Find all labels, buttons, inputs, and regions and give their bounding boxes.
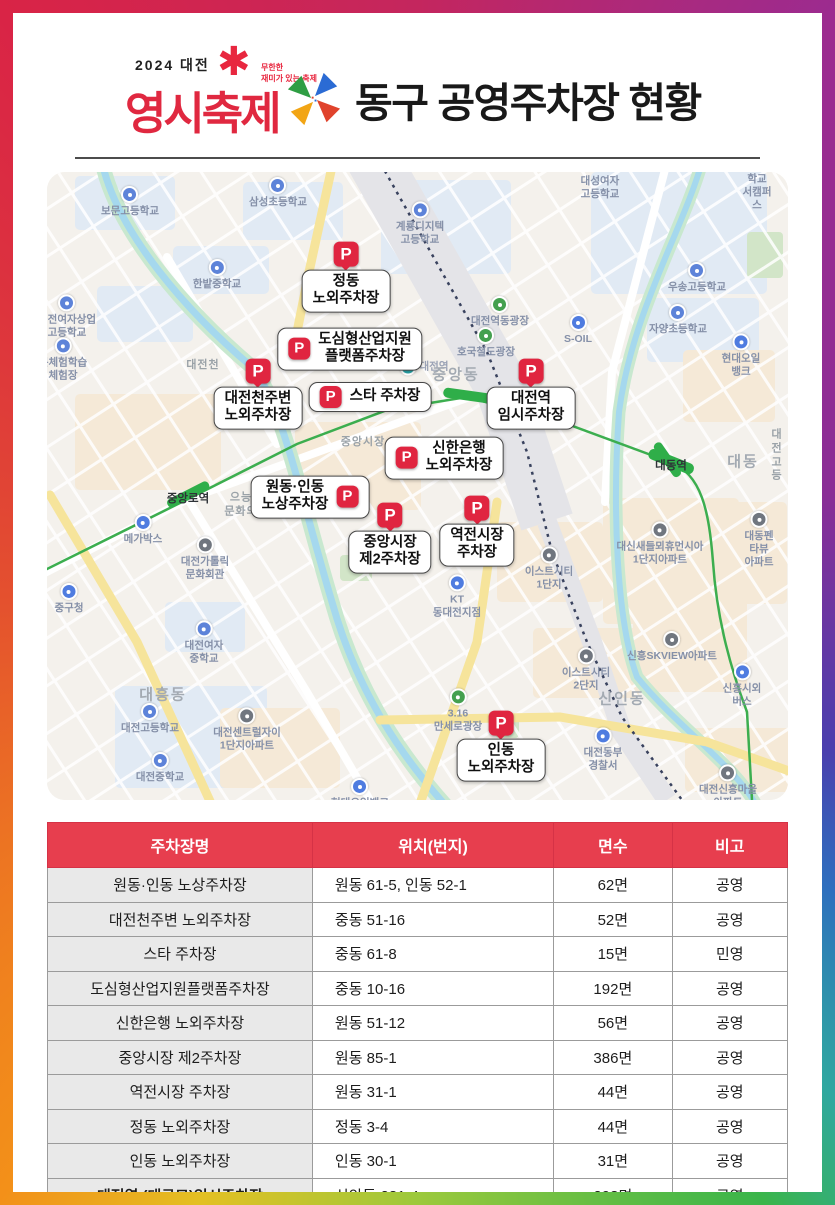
map-label-text: 중앙로역 bbox=[167, 492, 209, 506]
map-label: 신인동 bbox=[598, 691, 645, 710]
store-icon bbox=[60, 583, 77, 600]
school-icon bbox=[59, 294, 76, 311]
capacity-cell: 44면 bbox=[554, 1109, 672, 1144]
map-label-text: 대신새들뫼휴먼시아 1단지아파트 bbox=[617, 540, 704, 566]
location-cell: 중동 10-16 bbox=[312, 971, 553, 1006]
map-label-text: 대전고등학교 bbox=[121, 722, 179, 735]
location-cell: 원동 51-12 bbox=[312, 1006, 553, 1041]
parking-name-cell: 대전천주변 노외주차장 bbox=[48, 902, 313, 937]
apt-icon bbox=[720, 764, 737, 781]
map-label: 현대오일뱅크 bbox=[331, 778, 389, 800]
capacity-cell: 44면 bbox=[554, 1075, 672, 1110]
capacity-cell: 62면 bbox=[554, 868, 672, 903]
store-icon bbox=[594, 727, 611, 744]
map-label-text: 삼성초등학교 bbox=[249, 196, 307, 209]
parking-marker: P신한은행 노외주차장 bbox=[385, 437, 504, 480]
donggu-pinwheel-icon bbox=[285, 70, 343, 128]
map-label: 우송대학교 서캠퍼스 bbox=[742, 172, 773, 212]
table-row: 정동 노외주차장정동 3-444면공영 bbox=[48, 1109, 788, 1144]
apt-icon bbox=[663, 631, 680, 648]
school-icon bbox=[152, 752, 169, 769]
map-label: 대전 고등 bbox=[771, 429, 782, 484]
apt-icon bbox=[651, 521, 668, 538]
map-label: 대전고등학교 bbox=[121, 703, 179, 735]
school-icon bbox=[209, 259, 226, 276]
capacity-cell: 52면 bbox=[554, 902, 672, 937]
table-row: 역전시장 주차장원동 31-144면공영 bbox=[48, 1075, 788, 1110]
capacity-cell: 15면 bbox=[554, 937, 672, 972]
map-label: 대전동부 경찰서 bbox=[584, 727, 623, 772]
map-label: KT 동대전지점 bbox=[433, 574, 481, 619]
map-label-text: 이스트시티 2단지 bbox=[562, 666, 610, 692]
store-icon bbox=[134, 514, 151, 531]
map-label-text: 우송고등학교 bbox=[668, 281, 726, 294]
plaza-icon bbox=[492, 296, 509, 313]
map-label: 호국철도광장 bbox=[457, 327, 515, 359]
parking-marker-label: P스타 주차장 bbox=[309, 382, 432, 412]
star-icon: ✱ bbox=[217, 39, 251, 85]
store-icon bbox=[449, 574, 466, 591]
parking-p-icon: P bbox=[288, 338, 310, 360]
map-label: S-OIL bbox=[564, 314, 592, 346]
note-cell: 공영 bbox=[672, 1178, 787, 1192]
poster-body: 2024 대전 ✱ 무한한 재미가 있는 축제 영시축제 동구 공영주차장 현황 bbox=[13, 13, 822, 1192]
note-cell: 공영 bbox=[672, 1144, 787, 1179]
location-cell: 원동 31-1 bbox=[312, 1075, 553, 1110]
map-label-text: 신인동 bbox=[598, 691, 645, 710]
table-header-row: 주차장명위치(번지)면수비고 bbox=[48, 823, 788, 868]
map-label: 중앙로역 bbox=[167, 492, 209, 506]
capacity-cell: 298면 bbox=[554, 1178, 672, 1192]
parking-marker: P정동 노외주차장 bbox=[302, 242, 391, 313]
table-row: 대전역 (대규모)임시주차장신안동 231-4298면공영 bbox=[48, 1178, 788, 1192]
map-label-text: 문체험학습 체험장 bbox=[47, 356, 87, 382]
school-icon bbox=[122, 186, 139, 203]
note-cell: 공영 bbox=[672, 868, 787, 903]
header-title-row: 동구 공영주차장 현황 bbox=[285, 69, 701, 129]
parking-name-cell: 인동 노외주차장 bbox=[48, 1144, 313, 1179]
apt-icon bbox=[239, 707, 256, 724]
map-label-text: 대동펜타뷰 아파트 bbox=[745, 530, 774, 569]
parking-marker-text: 스타 주차장 bbox=[350, 388, 421, 405]
map-label-text: 중앙동 bbox=[432, 367, 479, 386]
store-icon bbox=[352, 778, 369, 795]
parking-p-icon: P bbox=[465, 496, 490, 521]
location-cell: 원동 85-1 bbox=[312, 1040, 553, 1075]
note-cell: 공영 bbox=[672, 971, 787, 1006]
table-row: 원동·인동 노상주차장원동 61-5, 인동 52-162면공영 bbox=[48, 868, 788, 903]
school-icon bbox=[142, 703, 159, 720]
map-label: 대신새들뫼휴먼시아 1단지아파트 bbox=[617, 521, 704, 566]
parking-p-icon: P bbox=[518, 359, 543, 384]
school-icon bbox=[195, 620, 212, 637]
map-label-text: 현대오일뱅크 bbox=[718, 352, 765, 378]
parking-name-cell: 신한은행 노외주차장 bbox=[48, 1006, 313, 1041]
map-label: 대전중학교 bbox=[136, 752, 184, 784]
map-label-text: 대동역 bbox=[655, 459, 687, 473]
parking-marker-text: 신한은행 노외주차장 bbox=[426, 441, 493, 476]
parking-name-cell: 스타 주차장 bbox=[48, 937, 313, 972]
school-icon bbox=[270, 177, 287, 194]
map-label-text: 현대오일뱅크 bbox=[331, 797, 389, 800]
map-label-text: 자양초등학교 bbox=[649, 323, 707, 336]
school-icon bbox=[412, 201, 429, 218]
map-label: 계룡디지텍 고등학교 bbox=[396, 201, 444, 246]
parking-marker-text: 도심형산업지원 플랫폼주차장 bbox=[318, 332, 411, 367]
map-label: 문체험학습 체험장 bbox=[47, 337, 87, 382]
map-label: 대전여자상업 고등학교 bbox=[47, 294, 96, 339]
map-label-text: 우송대학교 서캠퍼스 bbox=[742, 172, 773, 212]
parking-marker-text: 원동·인동 노상주차장 bbox=[262, 480, 329, 515]
parking-marker: P역전시장 주차장 bbox=[439, 496, 514, 567]
parking-marker-label: 대전역 임시주차장 bbox=[487, 387, 576, 430]
apt-icon bbox=[197, 536, 214, 553]
school-icon bbox=[689, 262, 706, 279]
capacity-cell: 31면 bbox=[554, 1144, 672, 1179]
map-label-text: 대전가톨릭 문화회관 bbox=[181, 555, 229, 581]
page-title: 동구 공영주차장 현황 bbox=[355, 69, 701, 129]
note-cell: 공영 bbox=[672, 1109, 787, 1144]
map-label-text: 대성여자 고등학교 bbox=[581, 175, 620, 201]
map-label: 대전센트럴자이 1단지아파트 bbox=[213, 707, 281, 752]
apt-icon bbox=[578, 647, 595, 664]
parking-marker-label: 역전시장 주차장 bbox=[439, 524, 514, 567]
map-label: 메가박스 bbox=[124, 514, 163, 546]
parking-p-icon: P bbox=[320, 386, 342, 408]
store-icon bbox=[734, 663, 751, 680]
table-row: 도심형산업지원플랫폼주차장중동 10-16192면공영 bbox=[48, 971, 788, 1006]
parking-p-icon: P bbox=[378, 503, 403, 528]
parking-name-cell: 정동 노외주차장 bbox=[48, 1109, 313, 1144]
map-label: 이스트시티 2단지 bbox=[562, 647, 610, 692]
map-label: 이스트시티 1단지 bbox=[525, 546, 573, 591]
map-label: 대전가톨릭 문화회관 bbox=[181, 536, 229, 581]
parking-map: 보문고등학교삼성초등학교계룡디지텍 고등학교대성여자 고등학교우송대학교 서캠퍼… bbox=[47, 172, 788, 800]
parking-marker-label: 인동 노외주차장 bbox=[457, 739, 546, 782]
map-label-text: 신흥시외버스 bbox=[719, 682, 765, 708]
location-cell: 중동 61-8 bbox=[312, 937, 553, 972]
parking-name-cell: 원동·인동 노상주차장 bbox=[48, 868, 313, 903]
map-label: 대성여자 고등학교 bbox=[581, 175, 620, 201]
parking-marker-label: 대전천주변 노외주차장 bbox=[214, 387, 303, 430]
map-label: 신흥시외버스 bbox=[719, 663, 765, 708]
map-label: 대동역 bbox=[655, 459, 687, 473]
plaza-icon bbox=[450, 688, 467, 705]
map-label: 중앙시장 bbox=[341, 436, 385, 450]
map-label-text: 호국철도광장 bbox=[457, 346, 515, 359]
capacity-cell: 192면 bbox=[554, 971, 672, 1006]
map-label-text: 중구청 bbox=[55, 602, 84, 615]
plaza-icon bbox=[478, 327, 495, 344]
parking-marker: P스타 주차장 bbox=[309, 382, 432, 412]
map-label: 중앙동 bbox=[432, 367, 479, 386]
parking-p-icon: P bbox=[396, 447, 418, 469]
parking-name-cell: 도심형산업지원플랫폼주차장 bbox=[48, 971, 313, 1006]
map-label-text: 이스트시티 1단지 bbox=[525, 565, 573, 591]
location-cell: 인동 30-1 bbox=[312, 1144, 553, 1179]
header-divider bbox=[75, 157, 760, 159]
parking-p-icon: P bbox=[488, 711, 513, 736]
map-label-text: 대동 bbox=[727, 454, 759, 473]
store-icon bbox=[570, 314, 587, 331]
note-cell: 공영 bbox=[672, 1075, 787, 1110]
map-label-text: 중앙시장 bbox=[341, 436, 385, 450]
map-label-text: 대전여자 중학교 bbox=[185, 639, 224, 665]
parking-p-icon: P bbox=[333, 242, 358, 267]
map-label-text: 보문고등학교 bbox=[101, 205, 159, 218]
map-label-text: 한밭중학교 bbox=[193, 278, 241, 291]
location-cell: 중동 51-16 bbox=[312, 902, 553, 937]
map-label-text: 대전중학교 bbox=[136, 771, 184, 784]
parking-marker-label: 정동 노외주차장 bbox=[302, 270, 391, 313]
map-label-text: 대전여자상업 고등학교 bbox=[47, 313, 96, 339]
map-label: 대동 bbox=[727, 454, 759, 473]
school-icon bbox=[670, 304, 687, 321]
parking-marker: P중앙시장 제2주차장 bbox=[348, 503, 431, 574]
map-label: 자양초등학교 bbox=[649, 304, 707, 336]
note-cell: 공영 bbox=[672, 1006, 787, 1041]
capacity-cell: 386면 bbox=[554, 1040, 672, 1075]
map-label-text: 메가박스 bbox=[124, 533, 163, 546]
map-label-text: 계룡디지텍 고등학교 bbox=[396, 220, 444, 246]
parking-name-cell: 대전역 (대규모)임시주차장 bbox=[48, 1178, 313, 1192]
map-label: 대동펜타뷰 아파트 bbox=[745, 511, 774, 569]
map-label-text: 대전신흥마을 아파트 bbox=[699, 783, 757, 800]
map-label-text: 대전센트럴자이 1단지아파트 bbox=[213, 726, 281, 752]
note-cell: 공영 bbox=[672, 1040, 787, 1075]
parking-marker: P대전천주변 노외주차장 bbox=[214, 359, 303, 430]
table-row: 스타 주차장중동 61-815면민영 bbox=[48, 937, 788, 972]
map-label: 대전신흥마을 아파트 bbox=[699, 764, 757, 800]
table-row: 대전천주변 노외주차장중동 51-1652면공영 bbox=[48, 902, 788, 937]
map-label: 신흥SKVIEW아파트 bbox=[627, 631, 717, 663]
map-label: 중구청 bbox=[55, 583, 84, 615]
map-label-text: KT 동대전지점 bbox=[433, 593, 481, 619]
table-row: 중앙시장 제2주차장원동 85-1386면공영 bbox=[48, 1040, 788, 1075]
column-header: 면수 bbox=[554, 823, 672, 868]
parking-marker: P대전역 임시주차장 bbox=[487, 359, 576, 430]
note-cell: 공영 bbox=[672, 902, 787, 937]
parking-name-cell: 역전시장 주차장 bbox=[48, 1075, 313, 1110]
parking-name-cell: 중앙시장 제2주차장 bbox=[48, 1040, 313, 1075]
apt-icon bbox=[541, 546, 558, 563]
location-cell: 신안동 231-4 bbox=[312, 1178, 553, 1192]
logo-tagline-line1: 무한한 bbox=[261, 63, 283, 72]
map-label-text: 신흥SKVIEW아파트 bbox=[627, 650, 717, 663]
column-header: 비고 bbox=[672, 823, 787, 868]
map-label-text: S-OIL bbox=[564, 333, 592, 346]
parking-table: 주차장명위치(번지)면수비고 원동·인동 노상주차장원동 61-5, 인동 52… bbox=[47, 822, 788, 1192]
map-label: 대전여자 중학교 bbox=[185, 620, 224, 665]
parking-marker: P인동 노외주차장 bbox=[457, 711, 546, 782]
map-label-text: 대전 고등 bbox=[771, 429, 782, 484]
map-label: 현대오일뱅크 bbox=[718, 333, 765, 378]
parking-marker-label: 중앙시장 제2주차장 bbox=[348, 531, 431, 574]
map-label: 대전역동광장 bbox=[471, 296, 529, 328]
apt-icon bbox=[751, 511, 768, 528]
capacity-cell: 56면 bbox=[554, 1006, 672, 1041]
school-icon bbox=[55, 337, 72, 354]
column-header: 위치(번지) bbox=[312, 823, 553, 868]
location-cell: 정동 3-4 bbox=[312, 1109, 553, 1144]
map-label: 보문고등학교 bbox=[101, 186, 159, 218]
column-header: 주차장명 bbox=[48, 823, 313, 868]
location-cell: 원동 61-5, 인동 52-1 bbox=[312, 868, 553, 903]
map-label: 삼성초등학교 bbox=[249, 177, 307, 209]
map-label-text: 대전동부 경찰서 bbox=[584, 746, 623, 772]
note-cell: 민영 bbox=[672, 937, 787, 972]
table-row: 신한은행 노외주차장원동 51-1256면공영 bbox=[48, 1006, 788, 1041]
parking-marker-label: P신한은행 노외주차장 bbox=[385, 437, 504, 480]
parking-p-icon: P bbox=[245, 359, 270, 384]
store-icon bbox=[733, 333, 750, 350]
map-label: 한밭중학교 bbox=[193, 259, 241, 291]
map-label: 우송고등학교 bbox=[668, 262, 726, 294]
table-row: 인동 노외주차장인동 30-131면공영 bbox=[48, 1144, 788, 1179]
